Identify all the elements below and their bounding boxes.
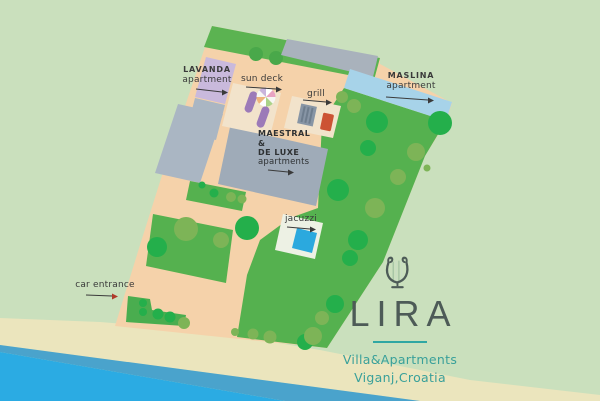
brand-divider xyxy=(373,341,427,343)
parasol-icon xyxy=(257,88,276,107)
maslina-subtitle: apartment xyxy=(386,81,435,92)
brand-tagline: Villa&Apartments xyxy=(330,351,470,369)
maestral-line1: MAESTRAL xyxy=(258,129,310,139)
car-entrance-label: car entrance xyxy=(75,280,135,291)
maslina-label: MASLINA apartment xyxy=(386,70,435,92)
site-map-graphic xyxy=(0,0,600,401)
maestral-label: MAESTRAL & DE LUXE apartments xyxy=(258,129,310,167)
brand-name: LIRA xyxy=(330,293,470,335)
site-map: LAVANDA apartment sun deck grill MASLINA… xyxy=(0,0,600,401)
brand-block: LIRA Villa&Apartments Viganj,Croatia xyxy=(330,255,470,387)
lavanda-label: LAVANDA apartment xyxy=(182,64,231,86)
brand-location: Viganj,Croatia xyxy=(330,369,470,387)
maestral-line2: & xyxy=(258,139,310,149)
grill-label: grill xyxy=(307,89,325,100)
sun-deck-label: sun deck xyxy=(241,74,283,85)
lyre-icon xyxy=(380,255,414,291)
maestral-line4: apartments xyxy=(258,158,310,168)
maslina-title: MASLINA xyxy=(386,70,435,81)
jacuzzi-label: jacuzzi xyxy=(285,214,317,225)
lavanda-title: LAVANDA xyxy=(182,64,231,75)
lavanda-subtitle: apartment xyxy=(182,75,231,86)
